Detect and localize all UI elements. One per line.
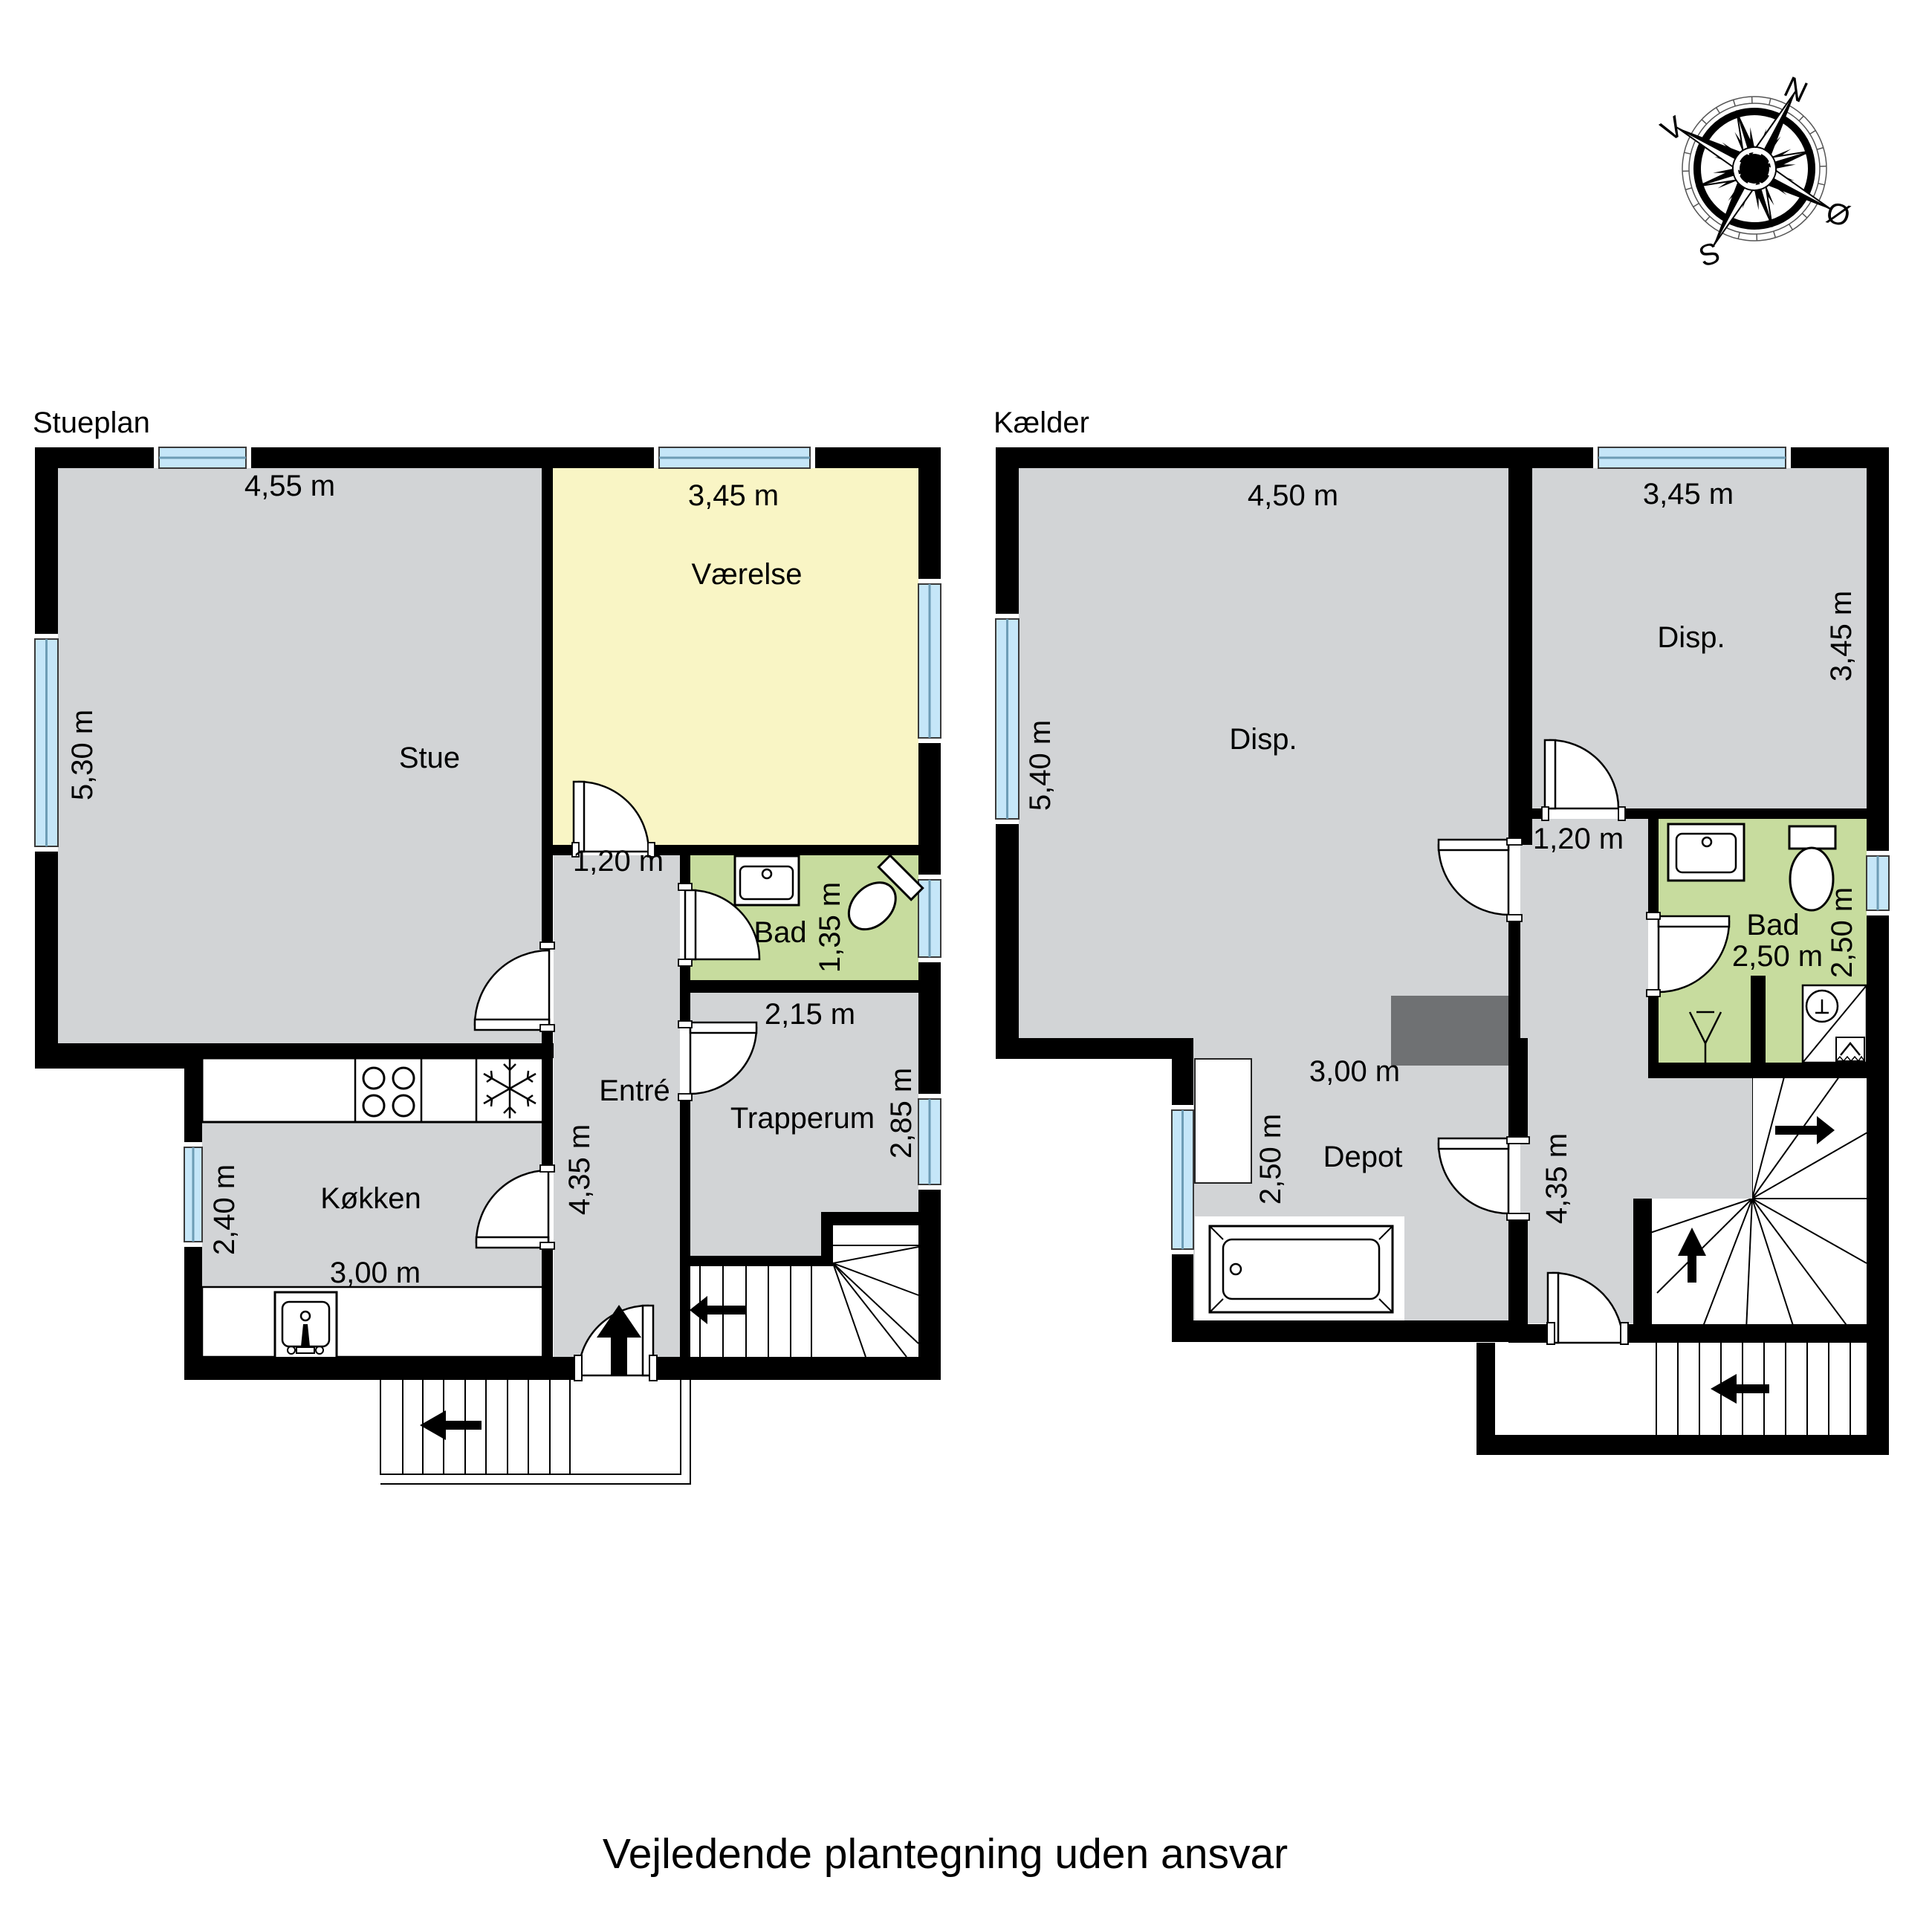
svg-text:3,00 m: 3,00 m — [1309, 1055, 1400, 1088]
svg-text:4,35 m: 4,35 m — [563, 1124, 596, 1215]
svg-text:Stueplan: Stueplan — [33, 406, 150, 439]
svg-text:5,30 m: 5,30 m — [66, 710, 99, 800]
svg-text:Disp.: Disp. — [1229, 723, 1297, 756]
svg-text:2,85 m: 2,85 m — [885, 1068, 918, 1158]
svg-text:Trapperum: Trapperum — [730, 1102, 875, 1135]
svg-text:Kælder: Kælder — [993, 406, 1089, 439]
svg-text:3,45 m: 3,45 m — [1643, 478, 1734, 510]
svg-text:2,15 m: 2,15 m — [765, 998, 855, 1031]
svg-text:1,20 m: 1,20 m — [573, 845, 664, 878]
svg-text:Værelse: Værelse — [692, 558, 803, 591]
svg-text:2,50 m: 2,50 m — [1826, 887, 1858, 978]
svg-text:4,50 m: 4,50 m — [1248, 479, 1338, 512]
svg-text:3,00 m: 3,00 m — [330, 1257, 421, 1289]
svg-text:4,35 m: 4,35 m — [1540, 1133, 1573, 1224]
svg-text:2,50 m: 2,50 m — [1732, 940, 1823, 973]
svg-text:Køkken: Køkken — [320, 1182, 421, 1215]
svg-text:1,35 m: 1,35 m — [814, 882, 846, 973]
svg-text:Stue: Stue — [399, 742, 460, 774]
svg-text:Entré: Entré — [599, 1074, 670, 1107]
svg-text:4,55 m: 4,55 m — [244, 470, 335, 502]
svg-text:Disp.: Disp. — [1657, 621, 1725, 654]
svg-text:Depot: Depot — [1323, 1141, 1403, 1173]
svg-text:3,45 m: 3,45 m — [688, 479, 779, 512]
svg-text:5,40 m: 5,40 m — [1024, 720, 1057, 811]
svg-text:Bad: Bad — [753, 916, 806, 949]
svg-text:2,40 m: 2,40 m — [208, 1164, 241, 1255]
svg-text:Vejledende plantegning uden an: Vejledende plantegning uden ansvar — [603, 1830, 1288, 1878]
svg-text:Bad: Bad — [1746, 909, 1799, 941]
svg-text:1,20 m: 1,20 m — [1533, 823, 1624, 855]
svg-text:3,45 m: 3,45 m — [1825, 591, 1858, 681]
svg-text:2,50 m: 2,50 m — [1254, 1114, 1287, 1205]
